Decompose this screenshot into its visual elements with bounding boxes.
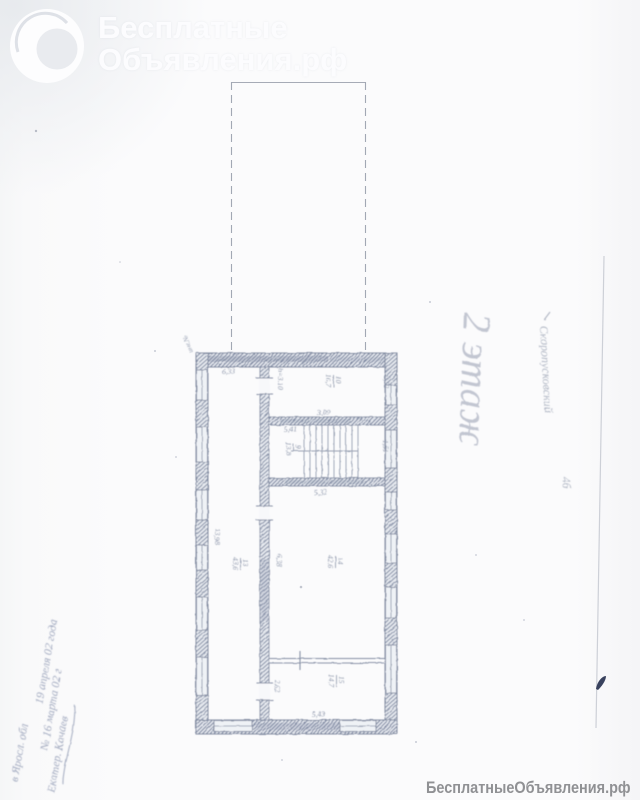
svg-text:13: 13 [241, 559, 250, 567]
svg-text:42,6: 42,6 [326, 555, 335, 568]
svg-text:13,98: 13,98 [213, 528, 222, 545]
svg-text:16,7: 16,7 [324, 374, 333, 387]
svg-text:h=3.10: h=3.10 [276, 368, 285, 390]
svg-text:6,33: 6,33 [222, 367, 236, 376]
svg-text:Скоропусковский: Скоропусковский [537, 325, 556, 413]
svg-text:3,09: 3,09 [316, 407, 331, 417]
svg-text:2,62: 2,62 [273, 680, 281, 693]
svg-text:2,52: 2,52 [382, 376, 390, 389]
svg-text:5,41: 5,41 [284, 424, 298, 434]
svg-text:инв.№: инв.№ [181, 334, 195, 354]
svg-text:15: 15 [337, 676, 346, 684]
svg-text:9: 9 [294, 445, 303, 449]
svg-text:6,38: 6,38 [275, 554, 284, 567]
svg-text:1,51: 1,51 [381, 440, 389, 452]
svg-text:14,7: 14,7 [327, 674, 336, 687]
svg-text:13,8: 13,8 [284, 442, 293, 455]
svg-text:10: 10 [334, 376, 343, 384]
svg-text:4б: 4б [559, 476, 574, 490]
svg-text:5,43: 5,43 [312, 709, 326, 719]
svg-text:2 этаж: 2 этаж [450, 312, 500, 447]
svg-text:14: 14 [336, 557, 345, 565]
svg-text:43,6: 43,6 [231, 557, 240, 570]
svg-text:5,32: 5,32 [314, 487, 328, 497]
svg-text:в Яросл. обл: в Яросл. обл [9, 723, 31, 783]
